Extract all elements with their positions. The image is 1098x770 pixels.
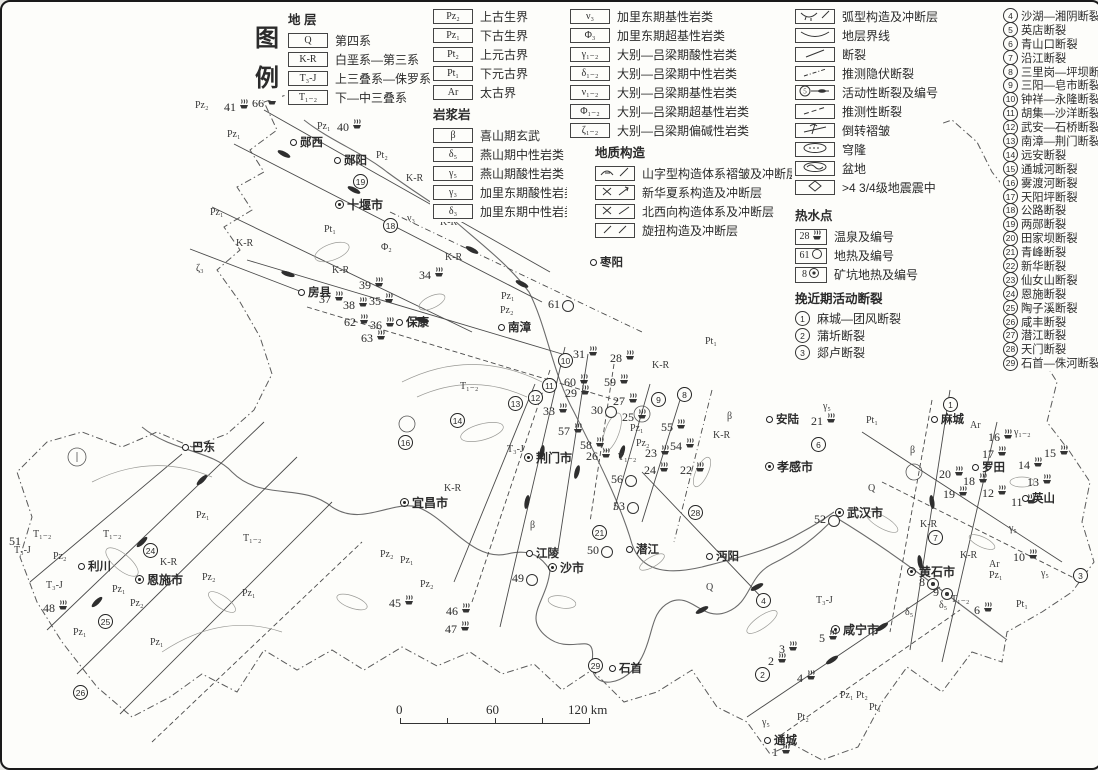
active-fault-number-marker: 28 xyxy=(688,505,703,520)
legend-symbol-box xyxy=(595,166,635,181)
symbol-item-row: 旋扭构造及冲断层 xyxy=(595,221,798,240)
hot-spring-icon xyxy=(1058,443,1070,461)
legend-item-label: 旋扭构造及冲断层 xyxy=(642,222,738,239)
active-fault-number-marker: 29 xyxy=(588,658,603,673)
legend-item-label: 推测性断裂 xyxy=(842,103,902,120)
legend-code-box: ζ₁₋₂ xyxy=(570,123,610,138)
legend-item-label: 加里东期基性岩类 xyxy=(617,8,713,25)
town-circle xyxy=(626,546,633,553)
hot-water-number: 17 xyxy=(982,447,994,462)
hot-spring-icon xyxy=(780,742,792,760)
strata-item-row: Pz₂上古生界 xyxy=(433,7,576,26)
fault-number-badge: 1 xyxy=(795,311,810,326)
city-name: 十堰市 xyxy=(347,196,383,213)
city-name: 孝感市 xyxy=(777,458,813,475)
overturned-fold-icon xyxy=(798,122,832,139)
town-circle xyxy=(182,444,189,451)
hot-spring-icon xyxy=(238,97,250,115)
basin-icon xyxy=(798,160,832,177)
city-marker-major: 荆门市 xyxy=(524,449,572,466)
hot-water-number: 31 xyxy=(573,347,585,362)
hot-spring-icon xyxy=(1032,455,1044,473)
igneous-item-row: γ₁₋₂大别—吕梁期酸性岩类 xyxy=(570,45,798,64)
hot-spring-icon xyxy=(1041,472,1053,490)
geologic-unit-label: Pz₁ xyxy=(112,584,126,595)
geologic-unit-label: Pz₂ xyxy=(130,598,144,609)
geologic-unit-label: Pt₁ xyxy=(866,415,878,426)
geologic-unit-label: Pz₁ xyxy=(227,129,241,140)
fault-number-badge: 18 xyxy=(1003,203,1018,218)
hot-water-number: 11 xyxy=(1011,495,1023,510)
legend-item-label: 下元古界 xyxy=(480,65,528,82)
hot-water-number: 35 xyxy=(369,294,381,309)
legend-item-label: 新华夏系构造及冲断层 xyxy=(642,184,762,201)
town-circle xyxy=(498,324,505,331)
strata-item-row: Q第四系 xyxy=(288,31,431,50)
hotwater-number: 28 xyxy=(800,231,810,242)
geologic-unit-label: T₁₋₂ xyxy=(618,452,636,463)
igneous-item-row: δ₃加里东期中性岩类 xyxy=(433,202,576,221)
hot-water-point: 22 xyxy=(680,460,706,478)
geologic-unit-label: Pz₂ xyxy=(380,549,394,560)
igneous-list-1: β喜山期玄武δ₅燕山期中性岩类γ₅燕山期酸性岩类γ₃加里东期酸性岩类δ₃加里东期… xyxy=(433,126,576,221)
hot-spring-icon xyxy=(375,328,387,346)
geothermal-circle xyxy=(625,475,637,487)
active-fault-number-marker: 7 xyxy=(928,530,943,545)
igneous-header: 岩浆岩 xyxy=(433,104,576,123)
active-fault-number-marker: 14 xyxy=(450,413,465,428)
hot-water-point: 16 xyxy=(988,427,1014,445)
city-double-circle xyxy=(765,462,774,471)
town-circle xyxy=(972,464,979,471)
legend-item-label: >4 3/4级地震震中 xyxy=(842,179,936,196)
hotwater-list: 28温泉及编号61地热及编号8矿坑地热及编号 xyxy=(795,227,938,284)
city-marker-major: 沙市 xyxy=(548,559,584,576)
hot-spring-icon xyxy=(982,600,994,618)
fault-number-badge: 25 xyxy=(1003,300,1018,315)
geologic-unit-label: Pz₂ xyxy=(636,438,650,449)
town-circle xyxy=(298,289,305,296)
fault-number-badge: 7 xyxy=(1003,50,1018,65)
epicenter-icon xyxy=(798,179,832,196)
legend-strata-col1: 地 层 Q第四系K-R白垩系—第三系T₃-J上三叠系—侏罗系T₁₋₂下—中三叠系 xyxy=(285,6,434,108)
hot-spring-icon xyxy=(684,436,696,454)
hot-water-number: 56 xyxy=(611,472,623,487)
geologic-unit-label: T₃-J xyxy=(507,444,524,455)
legend-item-label: 山字型构造体系褶皱及冲断层 xyxy=(642,165,798,182)
legend-title-char-2: 例 xyxy=(255,59,279,99)
legend-code-box: Q xyxy=(288,33,328,48)
hot-water-point: 17 xyxy=(982,444,1008,462)
hot-water-number: 19 xyxy=(943,487,955,502)
legend-item-label: 大别—吕梁期酸性岩类 xyxy=(617,46,737,63)
city-name: 恩施市 xyxy=(147,571,183,588)
active-fault-number-marker: 21 xyxy=(592,525,607,540)
legend-item-label: 大别—吕梁期基性岩类 xyxy=(617,84,737,101)
hot-spring-icon xyxy=(996,444,1008,462)
hot-water-number: 24 xyxy=(644,463,656,478)
geologic-unit-label: Ar xyxy=(989,559,1000,570)
hot-water-point: 29 xyxy=(565,383,591,401)
legend-code-box: T₁₋₂ xyxy=(288,90,328,105)
geothermal-circle xyxy=(605,406,617,418)
numbered-fault-row: 10钟祥—永隆断裂 xyxy=(1003,92,1098,106)
geologic-unit-label: Q xyxy=(706,582,713,593)
fault-number-badge: 29 xyxy=(1003,356,1018,371)
town-circle xyxy=(78,563,85,570)
igneous-item-row: ν₁₋₂大别—吕梁期基性岩类 xyxy=(570,83,798,102)
geologic-unit-label: Pz₁ xyxy=(989,570,1003,581)
legend-symbol-box xyxy=(795,9,835,24)
structure-header: 地质构造 xyxy=(595,142,798,161)
strata-list-1: Q第四系K-R白垩系—第三系T₃-J上三叠系—侏罗系T₁₋₂下—中三叠系 xyxy=(288,31,431,107)
geologic-unit-label: K-R xyxy=(406,173,423,184)
active-fault-row: 2蒲圻断裂 xyxy=(795,327,938,344)
hot-water-point: 53 xyxy=(613,499,639,514)
numbered-fault-row: 28天门断裂 xyxy=(1003,342,1098,356)
town-circle xyxy=(396,319,403,326)
city-name: 沙市 xyxy=(560,559,584,576)
symbol-item-row: 倒转褶皱 xyxy=(795,121,938,140)
active-fault-number-marker: 3 xyxy=(1073,568,1088,583)
city-marker-town: 郧西 xyxy=(290,134,323,150)
hot-water-point: 41 xyxy=(224,97,250,115)
numbered-fault-list: 4沙湖—湘阴断裂5英店断裂6青山口断裂7沿江断裂8三里岗—坪坝断裂9三阳—皂市断… xyxy=(1003,9,1098,370)
geologic-unit-label: T₁₋₂ xyxy=(951,594,969,605)
hot-water-number: 29 xyxy=(565,386,577,401)
legend-code-box: β xyxy=(433,128,473,143)
numbered-fault-row: 17天阳坪断裂 xyxy=(1003,190,1098,204)
hot-spring-icon xyxy=(787,639,799,657)
strata-header: 地 层 xyxy=(288,9,431,28)
hot-spring-icon xyxy=(776,651,788,669)
geologic-unit-label: γ₅ xyxy=(823,401,831,412)
legend-title: 图 例 xyxy=(252,18,282,100)
arc-fold-icon xyxy=(798,8,832,25)
fault-number-badge: 2 xyxy=(795,328,810,343)
active-fault-number-marker: 26 xyxy=(73,685,88,700)
hot-water-number: 49 xyxy=(512,571,524,586)
geologic-unit-label: Pt₂ xyxy=(376,150,388,161)
town-circle xyxy=(766,416,773,423)
numbered-fault-row: 4沙湖—湘阴断裂 xyxy=(1003,9,1098,23)
hot-spring-icon xyxy=(587,344,599,362)
legend-code-box: Pz₂ xyxy=(433,9,473,24)
city-name: 保康 xyxy=(406,314,429,330)
hotwater-number: 61 xyxy=(800,250,810,261)
city-name: 石首 xyxy=(619,660,642,676)
fault-number-badge: 24 xyxy=(1003,286,1018,301)
hot-water-point: 1 xyxy=(772,742,792,760)
geothermal-circle xyxy=(828,515,840,527)
numbered-fault-row: 23仙女山断裂 xyxy=(1003,273,1098,287)
legend-item-label: 地层界线 xyxy=(842,27,890,44)
active-fault-list: 1麻城—团风断裂2蒲圻断裂3郯卢断裂 xyxy=(795,310,938,361)
hot-water-number: 61 xyxy=(548,297,560,312)
numbered-fault-row: 25陶子溪断裂 xyxy=(1003,301,1098,315)
hot-water-number: 54 xyxy=(670,439,682,454)
fault-icon xyxy=(798,46,832,63)
legend-code-box: Pz₁ xyxy=(433,28,473,43)
legend-symbol-box xyxy=(595,185,635,200)
hot-water-point: 28 xyxy=(610,348,636,366)
rotational-icon xyxy=(598,222,632,239)
igneous-item-row: δ₅燕山期中性岩类 xyxy=(433,145,576,164)
geologic-unit-label: Pz₁ xyxy=(630,423,644,434)
legend-title-char-1: 图 xyxy=(255,19,279,59)
hot-water-point: 31 xyxy=(573,344,599,362)
fault-name: 蒲圻断裂 xyxy=(817,327,865,344)
hot-spring-icon xyxy=(1002,427,1014,445)
hot-water-point: 38 xyxy=(343,295,369,313)
geologic-unit-label: Pt₂ xyxy=(797,712,809,723)
scale-label-0: 0 xyxy=(396,702,403,718)
hot-spring-icon xyxy=(383,291,395,309)
city-name: 郧西 xyxy=(300,134,323,150)
igneous-item-row: γ₅燕山期酸性岩类 xyxy=(433,164,576,183)
hot-spring-icon xyxy=(827,628,839,646)
city-name: 江陵 xyxy=(536,545,559,561)
hot-water-point: 59 xyxy=(604,372,630,390)
fault-number-badge: 5 xyxy=(1003,22,1018,37)
geologic-unit-label: Pt₁ xyxy=(324,224,336,235)
city-marker-major: 恩施市 xyxy=(135,571,183,588)
legend-item-label: 白垩系—第三系 xyxy=(335,51,419,68)
legend-symbol-box xyxy=(795,66,835,81)
legend-code-box: γ₃ xyxy=(433,185,473,200)
legend-code-box: γ₁₋₂ xyxy=(570,47,610,62)
legend-item-label: 喜山期玄武 xyxy=(480,127,540,144)
fault-number-badge: 22 xyxy=(1003,258,1018,273)
legend-item-label: 大别—吕梁期中性岩类 xyxy=(617,65,737,82)
strata-item-row: K-R白垩系—第三系 xyxy=(288,50,431,69)
svg-text:5: 5 xyxy=(803,88,807,96)
geothermal-icon xyxy=(811,248,823,263)
hot-water-point: 6 xyxy=(974,600,994,618)
hot-water-point: 24 xyxy=(644,460,670,478)
geologic-unit-label: Pt₁ xyxy=(1016,599,1028,610)
geologic-unit-label: δ₅ xyxy=(939,600,947,611)
legend-numbered-faults: 4沙湖—湘阴断裂5英店断裂6青山口断裂7沿江断裂8三里岗—坪坝断裂9三阳—皂市断… xyxy=(1000,8,1098,371)
legend-item-label: 上元古界 xyxy=(480,46,528,63)
legend-item-label: 加里东期酸性岩类 xyxy=(480,184,576,201)
active-fault-number-marker: 16 xyxy=(398,435,413,450)
numbered-fault-row: 13南漳—荆门断裂 xyxy=(1003,134,1098,148)
hotwater-item-row: 8矿坑地热及编号 xyxy=(795,265,938,284)
hot-water-point: 56 xyxy=(611,472,637,487)
active-fault-number-marker: 18 xyxy=(383,218,398,233)
geologic-unit-label: K-R xyxy=(236,238,253,249)
igneous-item-row: ζ₁₋₂大别—吕梁期偏碱性岩类 xyxy=(570,121,798,140)
scale-bar: 0 60 120 km xyxy=(390,702,620,724)
hot-water-number: 46 xyxy=(446,604,458,619)
fault-number-badge: 13 xyxy=(1003,133,1018,148)
hot-spring-icon xyxy=(811,229,823,244)
active-fault-number-marker: 2 xyxy=(755,667,770,682)
legend-igneous-col2: ν₃加里东期基性岩类Φ₃加里东期超基性岩类γ₁₋₂大别—吕梁期酸性岩类δ₁₋₂大… xyxy=(567,6,801,241)
neocathaysian-icon xyxy=(598,184,632,201)
fault-number-badge: 6 xyxy=(1003,36,1018,51)
fault-number-badge: 27 xyxy=(1003,328,1018,343)
hot-water-number: 63 xyxy=(361,331,373,346)
symbol-list: 弧型构造及冲断层地层界线断裂推测隐伏断裂5活动性断裂及编号推测性断裂倒转褶皱穹隆… xyxy=(795,7,938,197)
geologic-unit-label: γ₅ xyxy=(1009,523,1017,534)
city-marker-major: 武汉市 xyxy=(835,504,883,521)
strata-item-row: Pt₂上元古界 xyxy=(433,45,576,64)
geologic-unit-label: Pz₁ xyxy=(73,627,87,638)
hot-water-number: 53 xyxy=(613,499,625,514)
hot-spring-icon xyxy=(1027,547,1039,565)
hot-water-point: 46 xyxy=(446,601,472,619)
geothermal-circle xyxy=(526,574,538,586)
hot-water-point: 10 xyxy=(1013,547,1039,565)
geothermal-circle xyxy=(627,502,639,514)
legend-item-label: 燕山期酸性岩类 xyxy=(480,165,564,182)
fault-number-badge: 26 xyxy=(1003,314,1018,329)
hotwater-header: 热水点 xyxy=(795,205,938,224)
symbol-item-row: 山字型构造体系褶皱及冲断层 xyxy=(595,164,798,183)
legend-code-box: Pt₂ xyxy=(433,47,473,62)
fault-number-badge: 8 xyxy=(1003,64,1018,79)
legend-code-box: δ₁₋₂ xyxy=(570,66,610,81)
fault-number-badge: 16 xyxy=(1003,175,1018,190)
city-name: 郧阳 xyxy=(344,152,367,168)
hot-water-number: 45 xyxy=(389,596,401,611)
geologic-unit-label: Pz₂ xyxy=(202,572,216,583)
strata-item-row: Ar太古界 xyxy=(433,83,576,102)
fault-number-badge: 9 xyxy=(1003,78,1018,93)
geologic-unit-label: T₁₋₂ xyxy=(460,381,478,392)
hotwater-item-row: 28温泉及编号 xyxy=(795,227,938,246)
hot-water-number: 5 xyxy=(819,631,825,646)
active-fault-row: 1麻城—团风断裂 xyxy=(795,310,938,327)
inferred-buried-fault-icon xyxy=(798,65,832,82)
geologic-unit-label: Pz₁ xyxy=(317,121,331,132)
city-marker-town: 江陵 xyxy=(526,545,559,561)
hot-water-number: 30 xyxy=(591,403,603,418)
hot-water-number: 14 xyxy=(1018,458,1030,473)
numbered-fault-row: 5英店断裂 xyxy=(1003,23,1098,37)
geologic-unit-label: ζ₃ xyxy=(196,263,204,274)
hot-spring-icon xyxy=(1025,492,1037,510)
legend-code-box: Pt₁ xyxy=(433,66,473,81)
strata-item-row: Pz₁下古生界 xyxy=(433,26,576,45)
geologic-unit-label: T₃-J xyxy=(816,595,833,606)
city-name: 枣阳 xyxy=(600,254,623,270)
numbered-fault-row: 9三阳—皂市断裂 xyxy=(1003,78,1098,92)
legend-symbol-box xyxy=(795,142,835,157)
hot-water-point: 34 xyxy=(419,265,445,283)
numbered-fault-row: 29石首—侏河断裂 xyxy=(1003,356,1098,370)
legend-item-label: 大别—吕梁期偏碱性岩类 xyxy=(617,122,749,139)
city-marker-town: 郧阳 xyxy=(334,152,367,168)
hot-water-number: 2 xyxy=(768,654,774,669)
legend-code-box: ν₁₋₂ xyxy=(570,85,610,100)
hotwater-symbol-box: 61 xyxy=(795,248,827,264)
hot-water-number: 52 xyxy=(814,512,826,527)
scale-label-60: 60 xyxy=(486,702,499,718)
active-fault-number-marker: 24 xyxy=(143,543,158,558)
legend-code-box: Ar xyxy=(433,85,473,100)
symbol-item-row: 地层界线 xyxy=(795,26,938,45)
geologic-unit-label: β xyxy=(727,411,732,422)
hot-water-point: 5 xyxy=(819,628,839,646)
hot-spring-icon xyxy=(618,372,630,390)
city-marker-major: 孝感市 xyxy=(765,458,813,475)
igneous-item-row: δ₁₋₂大别—吕梁期中性岩类 xyxy=(570,64,798,83)
hot-water-number: 50 xyxy=(587,543,599,558)
boundary-icon xyxy=(798,27,832,44)
city-name: 安陆 xyxy=(776,411,799,427)
legend-item-label: 燕山期中性岩类 xyxy=(480,146,564,163)
hot-spring-icon xyxy=(996,483,1008,501)
numbered-fault-row: 27潜江断裂 xyxy=(1003,328,1098,342)
hot-water-point: 45 xyxy=(389,593,415,611)
hot-spring-icon xyxy=(579,383,591,401)
geologic-unit-label: T₃-J xyxy=(14,545,31,556)
active-fault-row: 3郯卢断裂 xyxy=(795,344,938,361)
city-marker-town: 枣阳 xyxy=(590,254,623,270)
city-name: 巴东 xyxy=(192,439,215,455)
legend-item-label: 弧型构造及冲断层 xyxy=(842,8,938,25)
legend-symbol-box xyxy=(795,161,835,176)
geologic-unit-label: Pz₂ xyxy=(195,100,209,111)
igneous-item-row: Φ₁₋₂大别—吕梁期超基性岩类 xyxy=(570,102,798,121)
hot-water-point: 26 xyxy=(586,446,612,464)
legend-item-label: 北西向构造体系及冲断层 xyxy=(642,203,774,220)
geologic-unit-label: Pz₁ xyxy=(196,510,210,521)
scale-label-120: 120 km xyxy=(568,702,607,718)
fault-number-badge: 3 xyxy=(795,345,810,360)
geologic-unit-label: Q xyxy=(868,483,875,494)
symbol-item-row: >4 3/4级地震震中 xyxy=(795,178,938,197)
city-name: 宜昌市 xyxy=(412,494,448,511)
geologic-unit-label: ν₃ xyxy=(407,213,415,224)
hot-water-number: 20 xyxy=(939,467,951,482)
numbered-fault-row: 19两郧断裂 xyxy=(1003,217,1098,231)
geologic-unit-label: γ₁₋₂ xyxy=(1014,427,1031,438)
legend-item-label: 倒转褶皱 xyxy=(842,122,890,139)
symbol-item-row: 推测性断裂 xyxy=(795,102,938,121)
hot-spring-icon xyxy=(825,411,837,429)
town-circle xyxy=(764,737,771,744)
hot-water-number: 62 xyxy=(344,315,356,330)
fault-number-badge: 4 xyxy=(1003,8,1018,23)
legend-item-label: 加里东期中性岩类 xyxy=(480,203,576,220)
hot-water-point: 11 xyxy=(1011,492,1037,510)
hot-water-point: 63 xyxy=(361,328,387,346)
legend-item-label: 加里东期超基性岩类 xyxy=(617,27,725,44)
hot-spring-icon xyxy=(675,417,687,435)
strata-item-row: Pt₁下元古界 xyxy=(433,64,576,83)
hot-spring-icon xyxy=(57,598,69,616)
hot-water-number: 34 xyxy=(419,268,431,283)
hot-water-number: 15 xyxy=(1044,446,1056,461)
hot-spring-icon xyxy=(694,460,706,478)
city-name: 南漳 xyxy=(508,319,531,335)
legend-item-label: 穹隆 xyxy=(842,141,866,158)
hot-water-number: 1 xyxy=(772,745,778,760)
town-circle xyxy=(290,139,297,146)
fault-number-badge: 11 xyxy=(1003,106,1018,121)
legend-code-box: ν₃ xyxy=(570,9,610,24)
legend-item-label: 活动性断裂及编号 xyxy=(842,84,938,101)
legend-item-label: 下—中三叠系 xyxy=(335,89,407,106)
hot-water-number: 9 xyxy=(933,585,939,600)
hot-water-point: 50 xyxy=(587,543,613,558)
city-name: 沔阳 xyxy=(716,548,739,564)
nw-structure-icon xyxy=(598,203,632,220)
